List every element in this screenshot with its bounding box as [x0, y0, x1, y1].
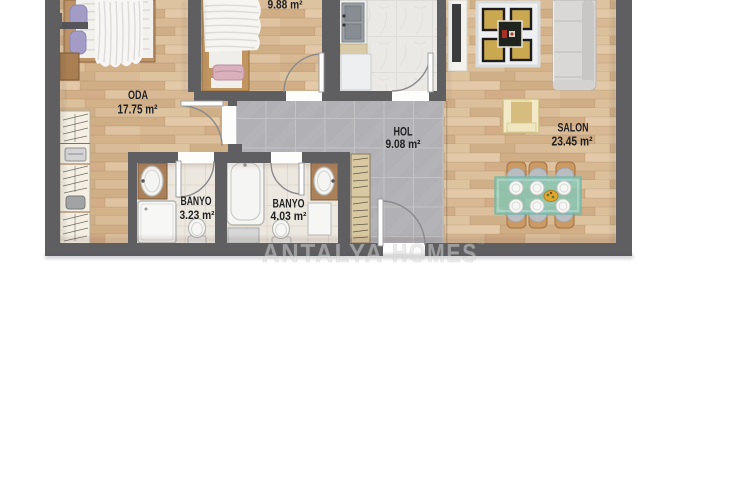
svg-text:SALON: SALON	[558, 121, 589, 135]
svg-text:9.08 m²: 9.08 m²	[386, 137, 421, 151]
svg-text:ODA: ODA	[128, 88, 148, 102]
svg-text:ANTALYA: ANTALYA	[262, 238, 384, 268]
svg-text:4.03 m²: 4.03 m²	[271, 211, 307, 223]
svg-text:HOMES: HOMES	[392, 238, 478, 268]
svg-text:17.75 m²: 17.75 m²	[118, 103, 158, 117]
svg-text:™: ™	[478, 242, 485, 249]
svg-text:9.88 m²: 9.88 m²	[268, 0, 303, 12]
svg-text:3.23 m²: 3.23 m²	[180, 210, 215, 222]
svg-text:BANYO: BANYO	[273, 199, 305, 211]
svg-text:BANYO: BANYO	[181, 196, 212, 208]
svg-text:23.45 m²: 23.45 m²	[552, 135, 593, 149]
